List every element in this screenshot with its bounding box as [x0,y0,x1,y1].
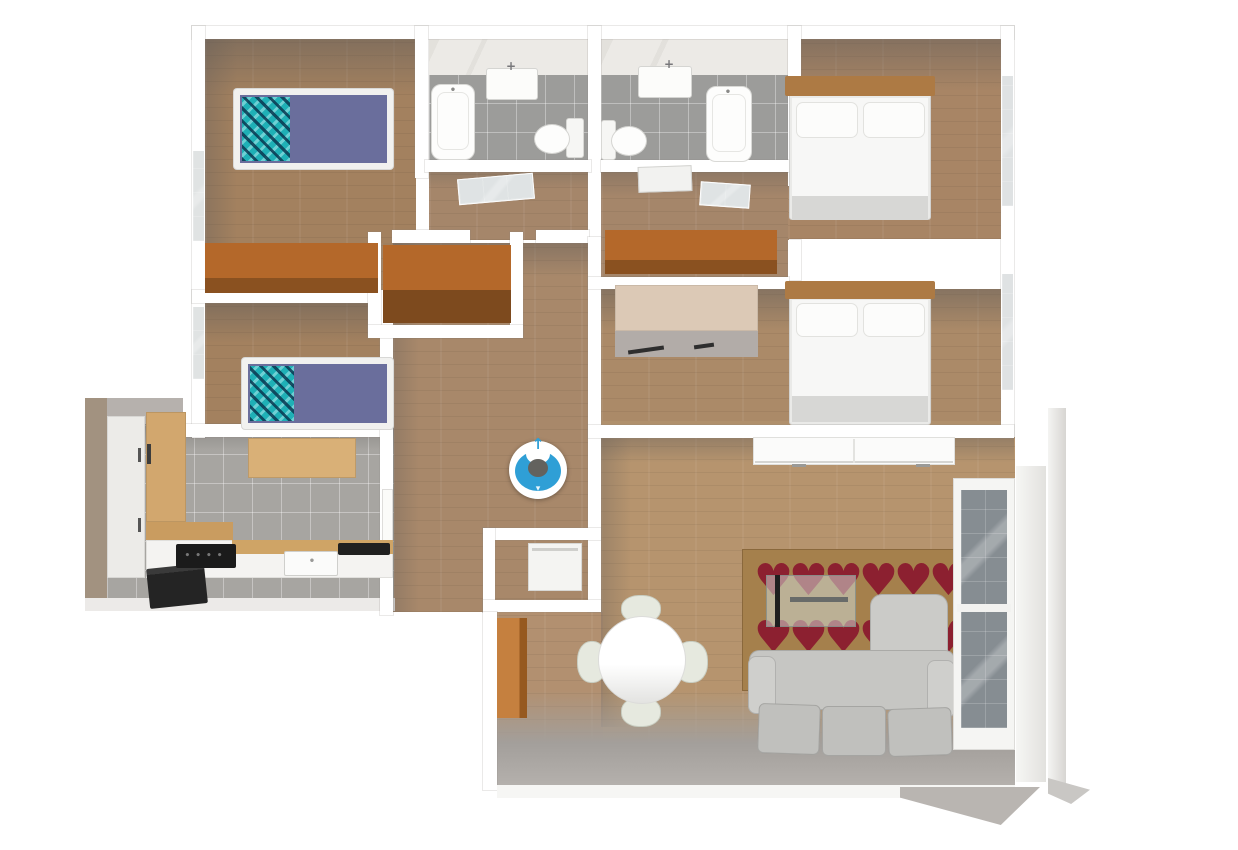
bedroom-mid-left-wall-shade [205,303,381,343]
double-bed-1-foot-blanket [792,196,928,220]
pantry-handle-bottom [138,518,141,532]
dining-bench [497,618,527,718]
wardrobe-top-2 [383,245,511,323]
double-bed-2-pillow-left [796,303,858,337]
bathtub-2-faucet-icon: • [719,88,737,98]
living-closet-divider [853,439,855,463]
patio-open-door-slab [1016,466,1046,782]
hallway-door [382,489,393,545]
double-bed-1-pillow-right [863,102,925,138]
wall-bath1-bottom [425,160,591,172]
double-bed-2-headboard [785,281,935,299]
patio-door-mid-rail [957,604,1011,612]
patio-door-pane-top [961,490,1007,606]
patio-door-pane-bottom [961,612,1007,728]
bathtub-1-basin [437,92,469,150]
wall-closet-bottom [483,600,601,612]
sink-2-faucet-icon: + [659,58,679,70]
wall-niche-bottom [368,325,523,338]
bathtub-1-faucet-icon: • [444,86,462,96]
camera-marker-knob[interactable] [528,459,548,477]
kitchen-pantry-cabinet [107,416,145,578]
wall-bath1-left [415,26,428,178]
tv-cabinet-bar [775,575,780,627]
camera-marker-down-tick-icon[interactable]: ▾ [531,483,545,495]
closet-appliance-lid [532,548,578,551]
sofa-backrest [749,650,955,710]
wall-vest1-bottom-b [536,230,589,243]
wardrobe-top-1 [205,243,378,293]
bed4-window [1002,274,1013,390]
sofa-cushion-2 [822,706,886,756]
toilet-2-bowl [611,126,647,156]
pantry-handle-top [138,448,141,462]
double-bed-1-headboard [785,76,935,96]
bottom-right-corner-wall [900,787,1040,825]
wardrobe-top-3 [605,230,777,274]
kitchen-tall-wood-cabinet [146,412,186,522]
kitchen-oven [146,563,208,609]
wall-baths-mid [588,26,601,240]
vest2-glass-panel [699,181,751,208]
wall-vest1-bottom-a [392,230,470,243]
bathtub-2-basin [712,94,746,152]
wall-closet-top [483,528,601,540]
single-bed-2-chevron-throw [250,366,294,421]
bed1-window [193,151,204,241]
dresser-top [615,285,758,331]
wall-dining-left [483,612,497,790]
dining-table-round [598,616,686,704]
balcony-wall-chip [1048,778,1090,804]
living-closet-knob-right [916,464,930,467]
wood-cabinet-handle [147,444,151,464]
double-bed-2-foot-blanket [792,396,928,422]
bed3-window [193,307,204,379]
sofa-cushion-1 [757,703,821,755]
toilet-1-bowl [534,124,570,154]
tv-cabinet-handle [790,597,848,602]
double-bed-2-pillow-right [863,303,925,337]
floorplan-canvas: •++•♥♥♥♥♥♥♥♥♥♥♥♥•••••↑▾ [0,0,1238,850]
kitchen-cooktop-2 [338,543,390,555]
bath2-marble-wall [601,39,789,77]
camera-marker-up-arrow-icon[interactable]: ↑ [527,435,549,453]
double-bed-1-pillow-left [796,102,858,138]
wall-bath2-bottom [601,160,789,172]
wall-bed2-left-stub [788,240,801,280]
kitchen-bottom-edge [85,598,395,611]
single-bed-1-chevron-throw [242,97,290,161]
cooktop-burners-icon: •••• [180,550,232,562]
sofa-cushion-3 [887,707,953,757]
balcony-side-wall [1048,408,1066,784]
wall-niche-right [510,232,523,336]
wall-top [192,26,1014,39]
kitchen-left-wall [85,398,107,611]
sink-1-faucet-icon: + [501,60,521,72]
kitchen-small-table [248,438,356,478]
kitchen-sink-drain-icon: • [306,556,318,568]
living-closet-knob-left [792,464,806,467]
vest2-door [638,165,693,193]
bed2-window [1002,76,1013,206]
